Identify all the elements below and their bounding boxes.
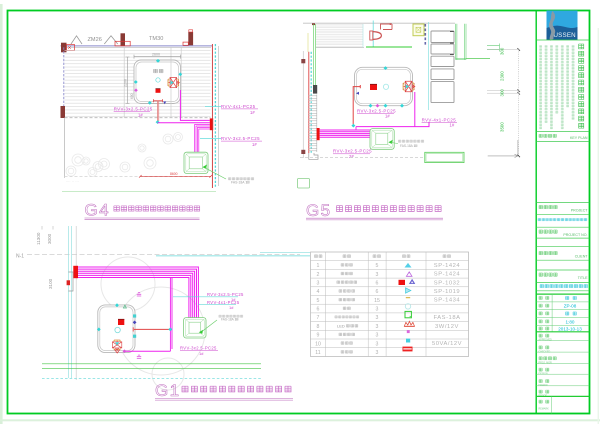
svg-text:10: 10 <box>315 341 321 347</box>
svg-text:8600: 8600 <box>170 172 178 176</box>
svg-text:1#: 1# <box>138 112 143 117</box>
svg-text:11: 11 <box>315 350 320 356</box>
svg-text:.... .. ...: .... .. ... <box>66 179 79 183</box>
svg-text:5: 5 <box>317 298 320 304</box>
svg-text:ZM26: ZM26 <box>88 37 102 43</box>
svg-text:PROJECT NO.: PROJECT NO. <box>563 233 587 237</box>
svg-text:5: 5 <box>376 263 379 269</box>
svg-text:300: 300 <box>500 47 505 55</box>
svg-text:2200: 2200 <box>123 79 127 87</box>
svg-text:SP-1019: SP-1019 <box>434 289 460 295</box>
svg-text:2300: 2300 <box>500 71 505 81</box>
svg-text:APPROVED: APPROVED <box>539 339 553 342</box>
svg-text:RVV-3x2.5-PC25: RVV-3x2.5-PC25 <box>221 136 260 141</box>
svg-text:6: 6 <box>376 281 379 287</box>
svg-text:RVV-3x2.5-PC25: RVV-3x2.5-PC25 <box>357 108 396 113</box>
svg-text:SP-1424: SP-1424 <box>434 272 461 278</box>
svg-text:PROJECT: PROJECT <box>571 209 589 213</box>
svg-text:1#: 1# <box>385 114 390 119</box>
svg-text:1#: 1# <box>252 142 257 147</box>
svg-text:2#: 2# <box>349 154 354 159</box>
svg-text:FAS-18A: FAS-18A <box>433 315 460 321</box>
svg-text:FAS-18A 1: FAS-18A 1 <box>231 181 247 185</box>
svg-text:3: 3 <box>376 272 379 278</box>
svg-text:N-1: N-1 <box>16 254 24 260</box>
svg-text:G5: G5 <box>306 201 331 220</box>
svg-text:RVV-4x1-PC25: RVV-4x1-PC25 <box>221 104 256 109</box>
svg-text:3: 3 <box>376 350 379 356</box>
svg-text:KEY PLAN: KEY PLAN <box>570 136 588 140</box>
svg-text:50VA/12V: 50VA/12V <box>432 341 462 347</box>
svg-text:6: 6 <box>317 307 320 313</box>
svg-text:FAS-18A 1: FAS-18A 1 <box>221 318 236 322</box>
svg-text:3W/12V: 3W/12V <box>435 324 459 330</box>
svg-text:RVV-3x2.5-PC25: RVV-3x2.5-PC25 <box>180 346 217 351</box>
svg-text:2600: 2600 <box>152 52 160 56</box>
svg-text:G1: G1 <box>155 381 180 400</box>
svg-text:CLIENT: CLIENT <box>575 255 589 259</box>
svg-text:SP-1424: SP-1424 <box>434 263 461 269</box>
svg-text:G4: G4 <box>85 201 110 220</box>
svg-text:DRAWN: DRAWN <box>539 384 548 387</box>
svg-text:7: 7 <box>317 315 320 321</box>
svg-text:6: 6 <box>376 289 379 295</box>
svg-text:1: 1 <box>317 263 320 269</box>
svg-text:USSEN: USSEN <box>554 32 576 39</box>
svg-text:RVV-3x2.5-PC25: RVV-3x2.5-PC25 <box>114 106 153 111</box>
svg-text:SP-1032: SP-1032 <box>434 280 460 286</box>
svg-text:3: 3 <box>376 324 379 330</box>
svg-text:CHECKED: CHECKED <box>539 351 551 354</box>
svg-text:PROJ. MGR: PROJ. MGR <box>539 361 553 364</box>
svg-text:15: 15 <box>374 298 380 304</box>
svg-text:ZP-08: ZP-08 <box>564 304 577 309</box>
svg-text:3: 3 <box>376 315 379 321</box>
svg-text:1:80: 1:80 <box>566 319 575 324</box>
svg-text:2013-10-13: 2013-10-13 <box>558 326 582 331</box>
svg-text:REMARK: REMARK <box>539 408 550 411</box>
svg-text:1#: 1# <box>229 305 234 310</box>
svg-text:1#: 1# <box>450 123 455 128</box>
svg-text:TITLE: TITLE <box>578 276 588 280</box>
svg-text:DESIGN: DESIGN <box>539 373 548 376</box>
svg-text:300: 300 <box>500 89 505 97</box>
svg-text:11300: 11300 <box>36 232 41 245</box>
svg-text:RVV-4x1-PC25: RVV-4x1-PC25 <box>207 300 240 305</box>
svg-text:1#: 1# <box>199 351 204 356</box>
svg-text:LED: LED <box>337 324 345 329</box>
svg-text:3: 3 <box>376 307 379 313</box>
svg-text:3000: 3000 <box>47 233 52 244</box>
svg-text:3: 3 <box>317 281 320 287</box>
svg-text:SP-1434: SP-1434 <box>434 298 461 304</box>
svg-text:9: 9 <box>317 333 320 339</box>
svg-text:1#: 1# <box>250 110 255 115</box>
svg-text:600: 600 <box>130 93 134 99</box>
svg-text:TM30: TM30 <box>149 36 163 42</box>
svg-text:2: 2 <box>317 272 320 278</box>
svg-text:3500: 3500 <box>500 122 505 132</box>
svg-text:3: 3 <box>376 333 379 339</box>
svg-text:FAS-18A 1: FAS-18A 1 <box>400 144 415 148</box>
svg-text:4: 4 <box>317 289 320 295</box>
svg-text:3: 3 <box>376 341 379 347</box>
svg-text:8: 8 <box>317 324 320 330</box>
svg-text:RVV-3x2.5-PC25: RVV-3x2.5-PC25 <box>207 292 244 297</box>
svg-text:3100: 3100 <box>48 278 53 289</box>
